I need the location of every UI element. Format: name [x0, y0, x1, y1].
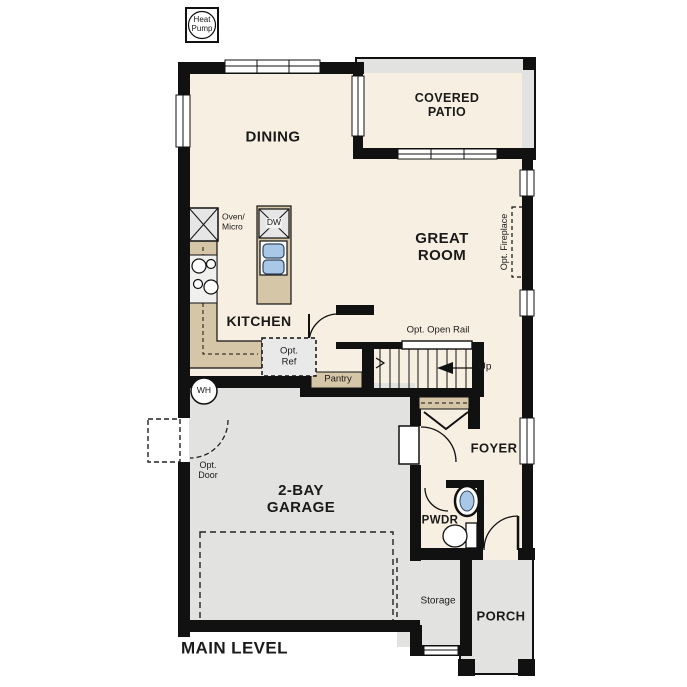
- kitchen-label: KITCHEN: [226, 314, 291, 330]
- floor-plan: Heat Pump DINING COVERED PATIO GREAT ROO…: [0, 0, 687, 687]
- porch-post: [518, 659, 535, 676]
- garage-label: 2-BAY GARAGE: [267, 483, 335, 517]
- burner: [194, 280, 203, 289]
- toilet-tank: [466, 523, 477, 548]
- storage-label: Storage: [420, 595, 455, 606]
- water-heater-label: WH: [197, 386, 211, 396]
- opt-ref-label: Opt. Ref: [280, 346, 298, 367]
- opt-fireplace-label: Opt. Fireplace: [499, 214, 509, 271]
- plan-title: MAIN LEVEL: [181, 638, 288, 657]
- opt-door-label: Opt. Door: [198, 460, 218, 480]
- pantry-label: Pantry: [324, 375, 351, 386]
- up-label: Up: [479, 361, 492, 372]
- oven-micro-label: Oven/ Micro: [222, 212, 245, 231]
- sink-basin: [263, 244, 284, 258]
- wall-segment: [300, 388, 484, 397]
- garage-entry-door-leaf: [399, 426, 419, 464]
- toilet-bowl: [443, 525, 467, 547]
- porch-label: PORCH: [477, 610, 526, 625]
- burner: [204, 280, 218, 294]
- heat-pump-label: Heat Pump: [192, 16, 213, 34]
- burner: [207, 260, 216, 269]
- great-room-label: GREAT ROOM: [415, 231, 468, 265]
- open-rail: [402, 341, 472, 349]
- sink-basin: [263, 260, 284, 274]
- wall-segment: [336, 305, 374, 315]
- burner: [192, 259, 206, 273]
- porch-post: [458, 659, 475, 676]
- wall-segment: [518, 548, 535, 560]
- opt-open-rail-label: Opt. Open Rail: [407, 326, 470, 337]
- wall-segment: [410, 465, 421, 561]
- dining-label: DINING: [246, 130, 301, 147]
- wall-segment: [460, 548, 472, 656]
- foyer-label: FOYER: [471, 442, 518, 457]
- wall-segment: [362, 342, 374, 388]
- wall-segment: [178, 462, 190, 637]
- patio-post: [523, 58, 535, 70]
- wall-segment: [468, 393, 480, 429]
- opt-door-landing: [148, 419, 180, 462]
- pwdr-sink-basin: [460, 491, 474, 511]
- wall-segment: [410, 548, 483, 560]
- covered-patio-label: COVERED PATIO: [415, 91, 480, 119]
- pwdr-label: PWDR: [422, 515, 459, 528]
- floor-plan-drawing: [0, 0, 687, 687]
- wall-segment: [178, 620, 420, 632]
- dishwasher-label: DW: [266, 218, 282, 228]
